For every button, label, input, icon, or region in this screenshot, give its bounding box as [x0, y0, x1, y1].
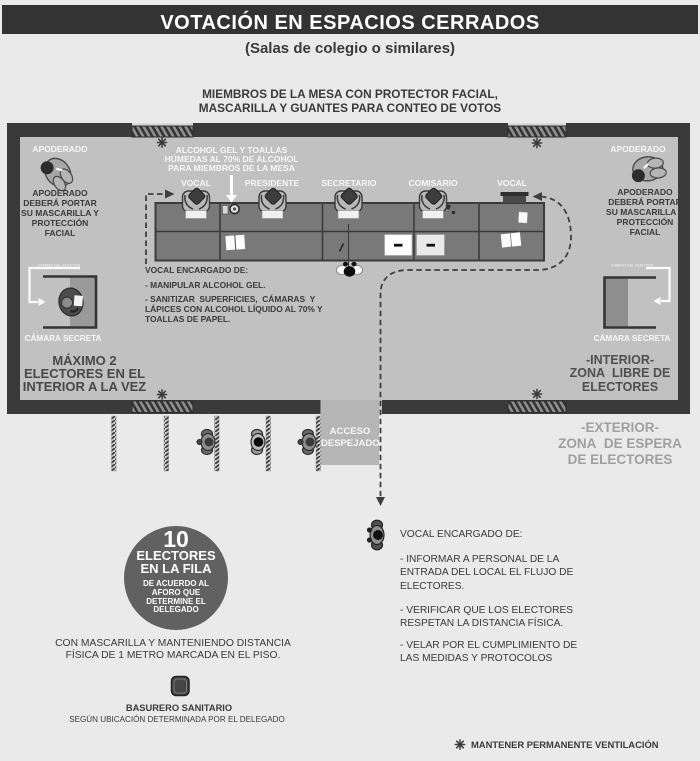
svg-text:CAMINO DEL ELECTOR: CAMINO DEL ELECTOR [38, 264, 81, 268]
svg-text:CAMINO DEL ELECTOR: CAMINO DEL ELECTOR [611, 264, 654, 268]
